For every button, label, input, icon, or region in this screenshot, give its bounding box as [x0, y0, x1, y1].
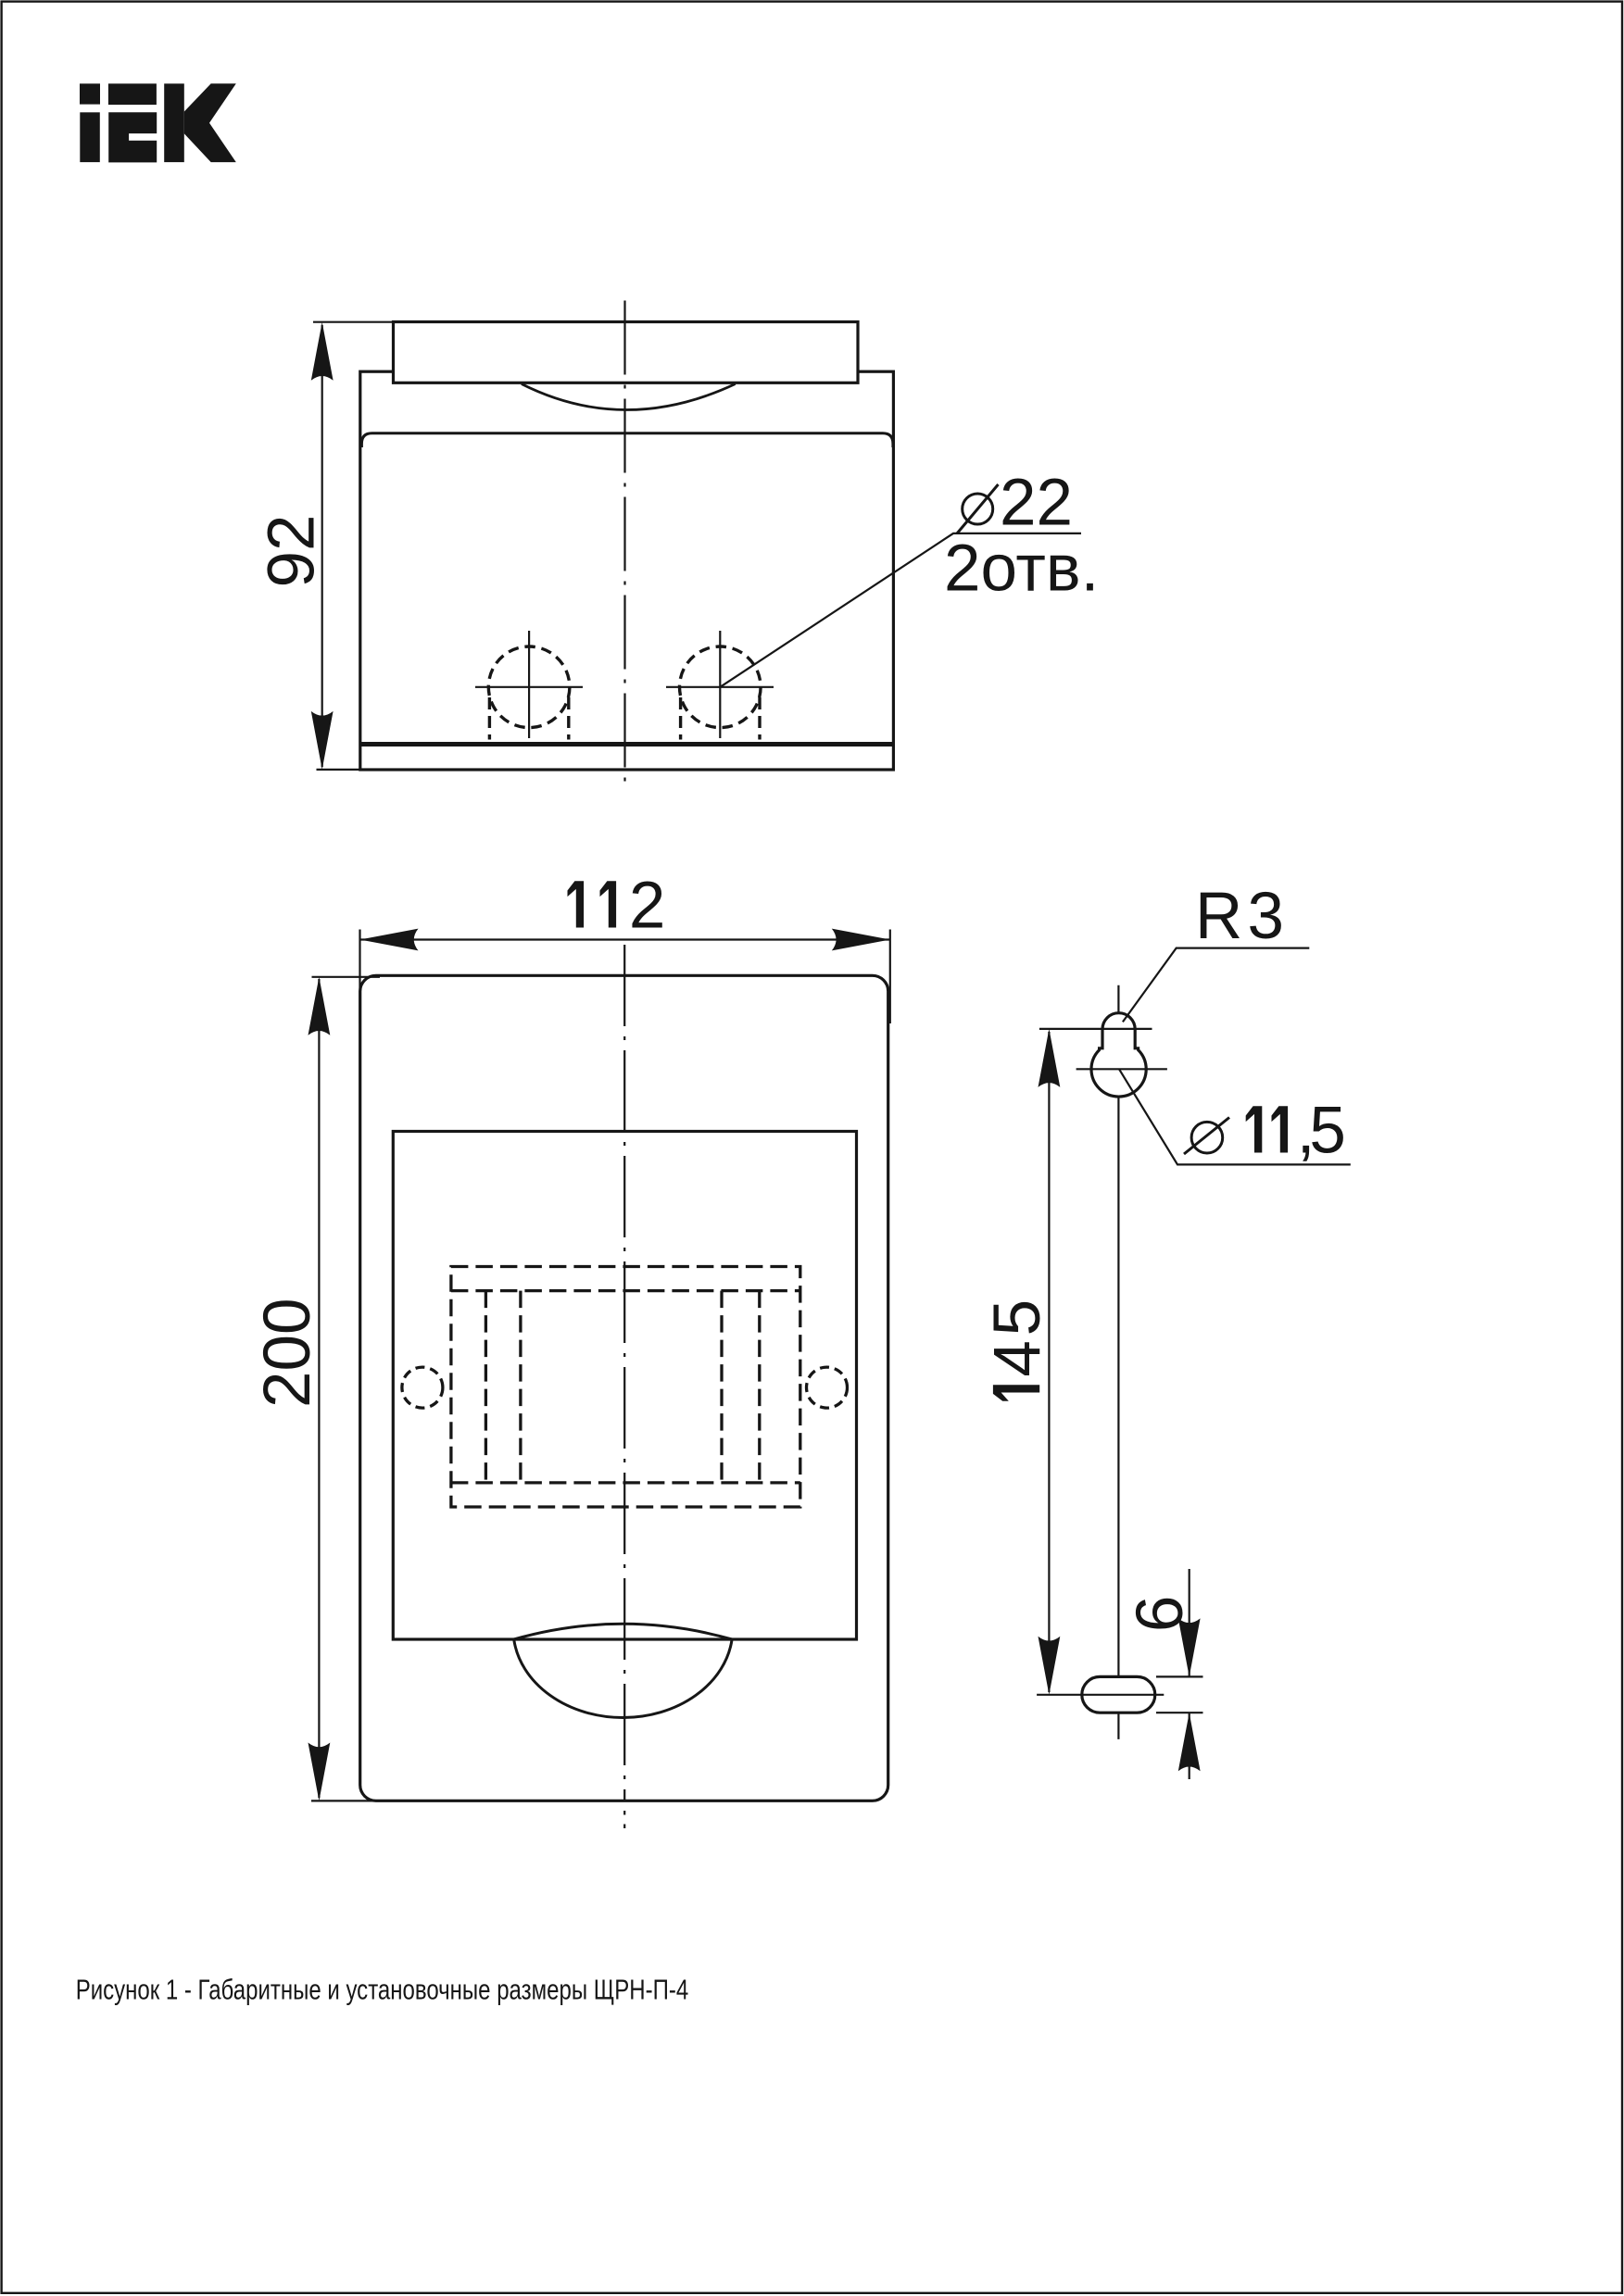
svg-text:22: 22: [1000, 467, 1073, 540]
svg-text:4: 4: [981, 1340, 1054, 1377]
svg-text:R3: R3: [1195, 880, 1284, 953]
svg-text:200: 200: [251, 1299, 324, 1408]
svg-text:2: 2: [629, 870, 666, 943]
svg-text:5: 5: [981, 1299, 1054, 1336]
svg-text:Рисунок 1 - Габаритные и устан: Рисунок 1 - Габаритные и установочные ра…: [76, 1974, 689, 2006]
svg-text:,5: ,5: [1297, 1095, 1346, 1168]
svg-text:2отв.: 2отв.: [944, 533, 1099, 606]
svg-text:6: 6: [1124, 1596, 1197, 1633]
svg-text:92: 92: [256, 515, 329, 588]
